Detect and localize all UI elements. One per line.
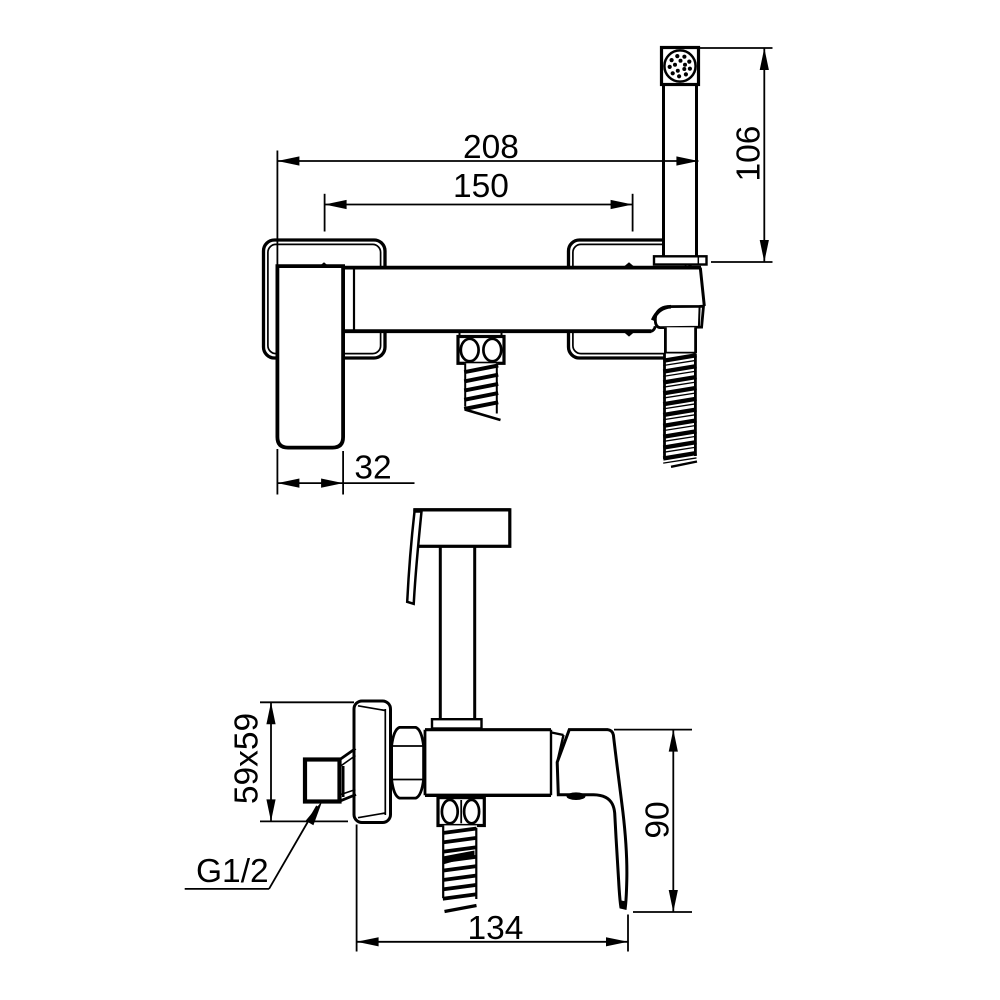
svg-text:32: 32 <box>354 450 391 487</box>
svg-text:59x59: 59x59 <box>229 713 266 804</box>
svg-text:106: 106 <box>731 126 768 182</box>
svg-text:208: 208 <box>463 129 519 166</box>
svg-text:150: 150 <box>453 168 509 205</box>
svg-text:90: 90 <box>640 801 677 838</box>
svg-text:G1/2: G1/2 <box>196 853 269 890</box>
svg-text:134: 134 <box>468 910 524 947</box>
